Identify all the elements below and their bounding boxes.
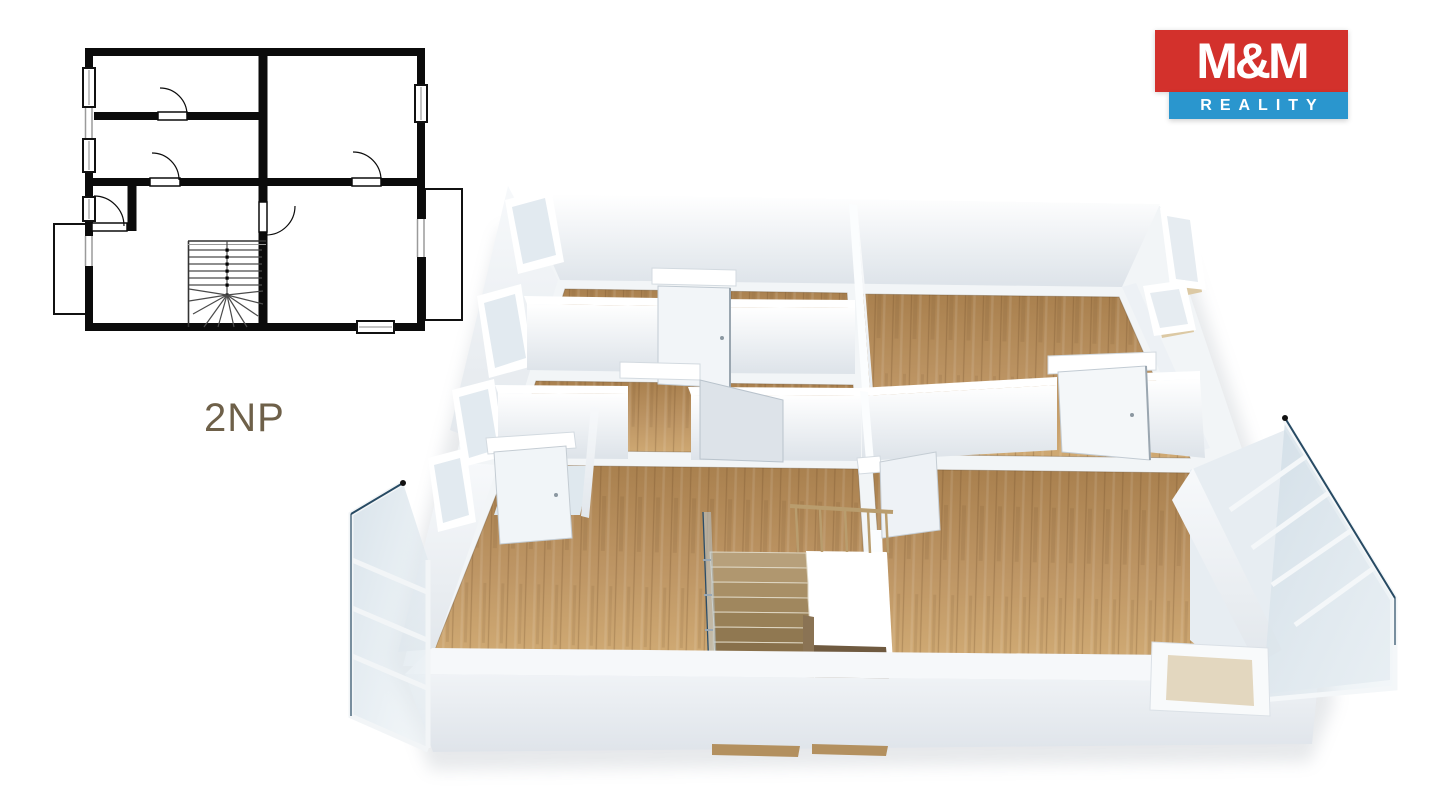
back-wall-3d bbox=[521, 192, 1161, 287]
door-right-room bbox=[1048, 352, 1156, 460]
page-canvas: 2NP M&M REALITY bbox=[0, 0, 1440, 810]
logo-mm: M&M bbox=[1155, 30, 1348, 92]
floor-label: 2NP bbox=[204, 396, 285, 440]
floor-plan-3d bbox=[330, 150, 1440, 810]
logo-reality: REALITY bbox=[1169, 92, 1348, 119]
mm-reality-logo: M&M REALITY bbox=[1155, 30, 1348, 119]
under-fascia-wood bbox=[712, 744, 800, 757]
balcony-left-3d bbox=[351, 480, 428, 750]
staircase-2d bbox=[188, 241, 266, 327]
balcony-left-2d bbox=[54, 224, 87, 314]
niche-3d bbox=[1150, 642, 1270, 716]
under-fascia-wood bbox=[812, 744, 888, 756]
